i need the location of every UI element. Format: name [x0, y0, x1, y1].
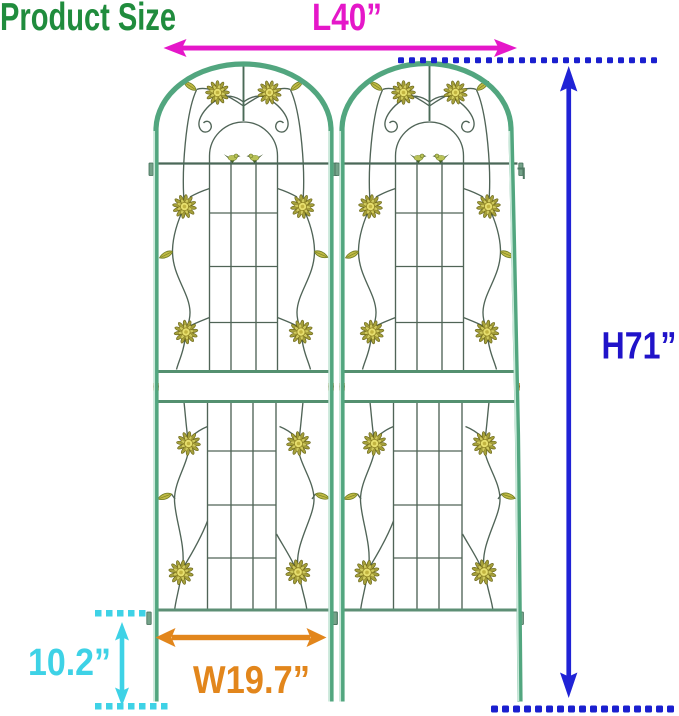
svg-text:L40”: L40”: [312, 0, 382, 39]
svg-text:H71”: H71”: [602, 326, 677, 368]
svg-text:W19.7”: W19.7”: [193, 659, 310, 702]
svg-text:Product Size: Product Size: [0, 0, 176, 39]
svg-text:10.2”: 10.2”: [28, 642, 111, 684]
